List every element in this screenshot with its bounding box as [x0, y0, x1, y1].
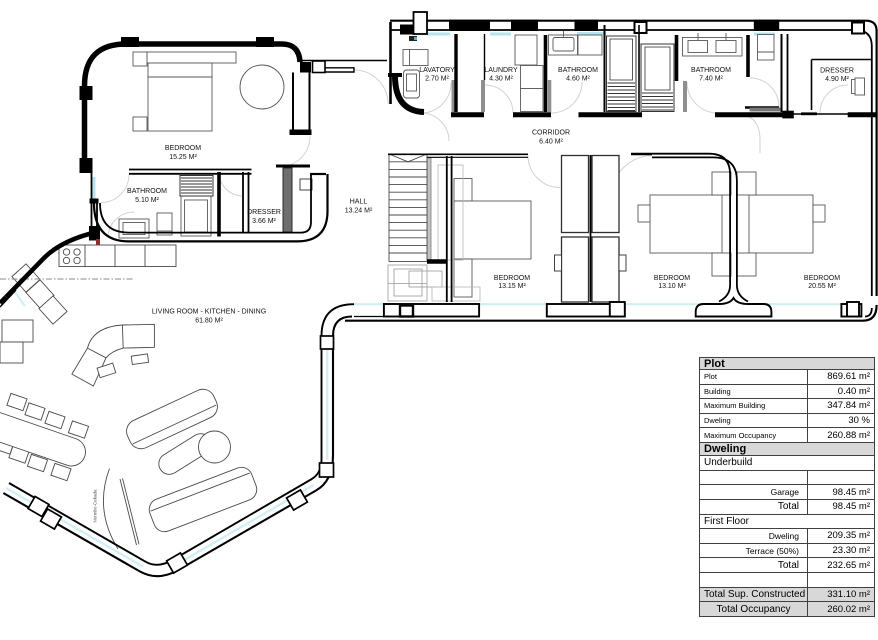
svg-text:LAVATORY: LAVATORY: [419, 67, 455, 74]
svg-text:Normbo-Cekada: Normbo-Cekada: [93, 489, 98, 523]
svg-text:BEDROOM: BEDROOM: [804, 275, 840, 282]
svg-text:4.60 M²: 4.60 M²: [566, 76, 590, 83]
svg-text:13.24 M²: 13.24 M²: [345, 208, 373, 215]
svg-text:DRESSER: DRESSER: [820, 68, 854, 75]
svg-text:2.70 M²: 2.70 M²: [425, 76, 449, 83]
svg-text:13.10 M²: 13.10 M²: [658, 283, 686, 290]
svg-text:LIVING ROOM - KITCHEN - DINING: LIVING ROOM - KITCHEN - DINING: [152, 309, 266, 316]
svg-text:BATHROOM: BATHROOM: [691, 67, 731, 74]
svg-text:CORRIDOR: CORRIDOR: [532, 130, 570, 137]
svg-text:5.10 M²: 5.10 M²: [135, 197, 159, 204]
svg-text:20.55 M²: 20.55 M²: [808, 283, 836, 290]
svg-text:6.40 M²: 6.40 M²: [539, 139, 563, 146]
svg-text:61.80 M²: 61.80 M²: [195, 318, 223, 325]
svg-text:7.40 M²: 7.40 M²: [699, 76, 723, 83]
svg-text:BEDROOM: BEDROOM: [165, 145, 201, 152]
svg-text:15.25 M²: 15.25 M²: [169, 154, 197, 161]
svg-text:BATHROOM: BATHROOM: [127, 188, 167, 195]
svg-text:4.30 M²: 4.30 M²: [489, 76, 513, 83]
svg-text:BATHROOM: BATHROOM: [558, 67, 598, 74]
svg-text:4.90 M²: 4.90 M²: [825, 76, 849, 83]
svg-text:LAUNDRY: LAUNDRY: [484, 67, 518, 74]
svg-text:BEDROOM: BEDROOM: [494, 275, 530, 282]
svg-text:DRESSER: DRESSER: [247, 209, 281, 216]
svg-text:13.15 M²: 13.15 M²: [498, 283, 526, 290]
svg-text:HALL: HALL: [350, 199, 368, 206]
svg-text:BEDROOM: BEDROOM: [654, 275, 690, 282]
svg-text:3.66 M²: 3.66 M²: [252, 218, 276, 225]
